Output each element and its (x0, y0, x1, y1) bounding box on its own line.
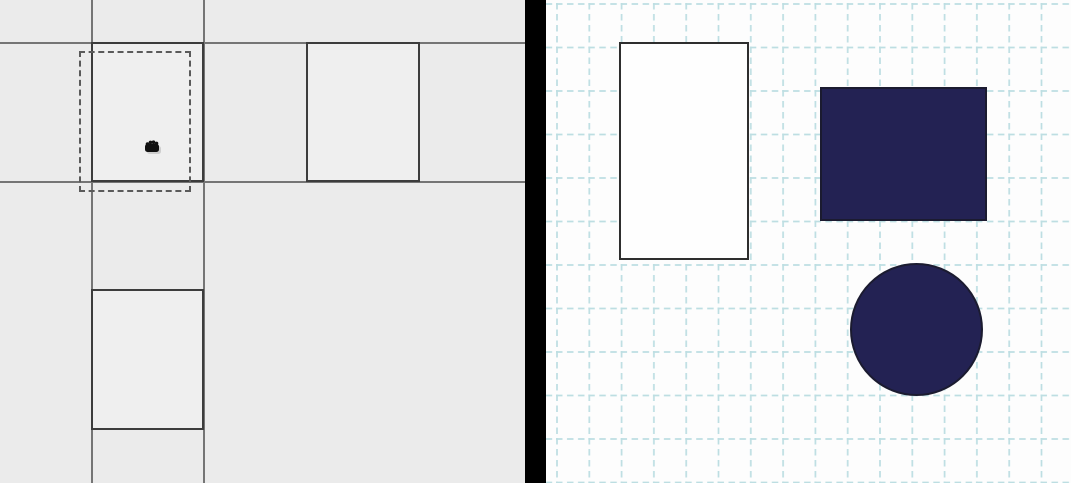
panel-divider (525, 0, 546, 483)
grid-hline-top (0, 42, 525, 44)
rectangle-shape-top[interactable] (306, 42, 420, 182)
grab-cursor-glyph (141, 136, 163, 156)
drag-preview-outline[interactable] (79, 51, 191, 192)
right-canvas[interactable] (546, 0, 1071, 483)
screenshot-root (0, 0, 1071, 483)
filled-circle-shape[interactable] (850, 263, 983, 396)
rectangle-shape-bottom[interactable] (91, 289, 204, 430)
outlined-rectangle-shape[interactable] (619, 42, 749, 260)
left-canvas[interactable] (0, 0, 525, 483)
grab-cursor-icon (141, 136, 163, 156)
filled-rectangle-shape[interactable] (820, 87, 987, 221)
